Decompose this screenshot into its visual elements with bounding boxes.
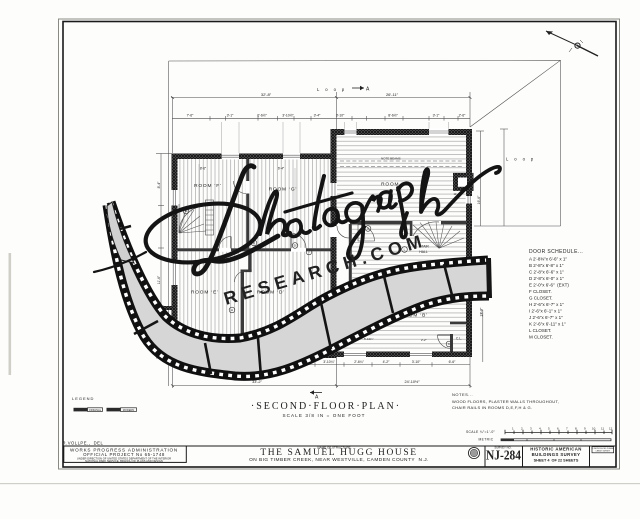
svg-text:8′-6″: 8′-6″ [200, 167, 207, 171]
svg-text:16′-6″: 16′-6″ [477, 195, 481, 204]
svg-text:A 2′-8⅜″x 6′-6″ x 1″: A 2′-8⅜″x 6′-6″ x 1″ [529, 256, 567, 261]
svg-text:10: 10 [592, 427, 596, 431]
svg-text:CHAIR RAILS IN ROOMS D,E,F,H &: CHAIR RAILS IN ROOMS D,E,F,H & G. [452, 405, 532, 410]
svg-text:NATIONAL PARK SERVICE, BRANCH: NATIONAL PARK SERVICE, BRANCH OF PLANS A… [85, 459, 163, 463]
svg-text:R.VOLLPE., DEL: R.VOLLPE., DEL [63, 441, 104, 446]
svg-text:C 2′-8″x 6′-6″ x 1″: C 2′-8″x 6′-6″ x 1″ [529, 269, 564, 274]
svg-text:24′-8″: 24′-8″ [480, 307, 484, 316]
svg-text:11: 11 [601, 427, 604, 431]
svg-text:H 2′-6″x 6′-7″ x 1″: H 2′-6″x 6′-7″ x 1″ [529, 302, 564, 307]
svg-text:SCALE 3/8 IN = ONE FOOT: SCALE 3/8 IN = ONE FOOT [282, 413, 365, 418]
svg-text:12: 12 [609, 427, 613, 431]
svg-text:26′-11″: 26′-11″ [386, 92, 399, 97]
svg-text:3′-4″: 3′-4″ [314, 113, 322, 117]
svg-text:2′-2″: 2′-2″ [421, 338, 427, 342]
svg-text:G CLOSET.: G CLOSET. [529, 295, 553, 300]
svg-text:HISTORIC AMERICAN: HISTORIC AMERICAN [530, 446, 582, 451]
svg-text:E 2′-0″x 6′-6″ (EXT): E 2′-0″x 6′-6″ (EXT) [529, 282, 569, 287]
svg-text:K 2′-6″x 6′-11″ x 1″: K 2′-6″x 6′-11″ x 1″ [529, 321, 566, 326]
svg-text:M CLOSET.: M CLOSET. [529, 334, 553, 339]
svg-text:SHEET 4 OF 22 SHEETS: SHEET 4 OF 22 SHEETS [534, 459, 579, 463]
svg-text:6′-6″: 6′-6″ [449, 360, 457, 364]
svg-text:·SECOND·FLOOR·PLAN·: ·SECOND·FLOOR·PLAN· [251, 401, 401, 412]
svg-text:D 2′-8″x 6′-0″ x 1″: D 2′-8″x 6′-0″ x 1″ [529, 276, 564, 281]
svg-text:THE SAMUEL HUGG HOUSE: THE SAMUEL HUGG HOUSE [260, 448, 417, 458]
svg-text:3′-10″: 3′-10″ [412, 360, 421, 364]
svg-text:B 2′-8″x 6′-8″ x 1″: B 2′-8″x 6′-8″ x 1″ [529, 263, 564, 268]
svg-text:K: K [448, 342, 450, 346]
svg-text:2′-6¼″: 2′-6¼″ [354, 360, 364, 364]
svg-text:J 2′-6″x 6′-7″ x 1″: J 2′-6″x 6′-7″ x 1″ [529, 315, 563, 320]
svg-text:NOTES...: NOTES... [452, 392, 473, 397]
svg-text:6′-4″: 6′-4″ [278, 167, 285, 171]
svg-text:NJ-284: NJ-284 [486, 448, 521, 463]
svg-text:C.L.: C.L. [456, 337, 462, 341]
svg-text:2′-6″: 2′-6″ [459, 113, 467, 117]
svg-text:3′-1″: 3′-1″ [227, 113, 235, 117]
svg-text:3′-1″: 3′-1″ [433, 113, 441, 117]
svg-text:ROOM ‘F’: ROOM ‘F’ [194, 183, 222, 189]
svg-text:ROOM ‘E’: ROOM ‘E’ [191, 290, 219, 296]
svg-text:OFFICIAL PROJECT No 65-1748: OFFICIAL PROJECT No 65-1748 [83, 452, 165, 457]
svg-text:ON BIG TIMBER CREEK, NEAR WEST: ON BIG TIMBER CREEK, NEAR WESTVILLE, CAM… [249, 457, 429, 463]
svg-text:NOTE BEAMS: NOTE BEAMS [381, 157, 401, 161]
svg-text:L o o p: L o o p [317, 87, 347, 92]
svg-text:5′-10¼″: 5′-10¼″ [364, 337, 373, 341]
svg-text:I 2′-6″x 6′-1″ x 1″: I 2′-6″x 6′-1″ x 1″ [529, 308, 562, 313]
svg-text:L o o p: L o o p [506, 157, 536, 162]
svg-text:7′-6″: 7′-6″ [187, 113, 195, 117]
svg-text:DOOR SCHEDULE...: DOOR SCHEDULE... [529, 249, 583, 255]
svg-text:MODERN: MODERN [123, 408, 135, 412]
svg-text:6′-6½″: 6′-6½″ [257, 113, 267, 117]
svg-text:L CLOSET.: L CLOSET. [529, 328, 551, 333]
svg-text:WOOD FLOORS, PLASTER WALLS THR: WOOD FLOORS, PLASTER WALLS THROUGHOUT, [452, 399, 559, 404]
svg-text:32′-8″: 32′-8″ [261, 92, 272, 97]
svg-text:METRIC: METRIC [479, 437, 494, 441]
svg-text:8′-6½″: 8′-6½″ [388, 113, 398, 117]
svg-text:11′-6″: 11′-6″ [157, 275, 161, 284]
svg-text:SCALE ¼″=1′-0″: SCALE ¼″=1′-0″ [466, 430, 496, 434]
svg-text:F CLOSET.: F CLOSET. [529, 289, 552, 294]
svg-text:BUILDINGS SURVEY: BUILDINGS SURVEY [532, 452, 581, 457]
svg-text:3′-10¼″: 3′-10¼″ [323, 360, 335, 364]
svg-text:4′-2″: 4′-2″ [383, 360, 391, 364]
svg-text:24′-10½″: 24′-10½″ [405, 380, 421, 384]
svg-text:ORIGINAL: ORIGINAL [89, 408, 102, 412]
svg-text:3′-10½″: 3′-10½″ [282, 113, 294, 117]
svg-text:8′-4″: 8′-4″ [157, 181, 161, 189]
svg-text:LEGEND: LEGEND [72, 396, 94, 401]
svg-text:3′-10″: 3′-10″ [336, 113, 345, 117]
svg-text:H: H [231, 308, 233, 312]
svg-text:CREDIT SURVEY: CREDIT SURVEY [596, 451, 611, 453]
